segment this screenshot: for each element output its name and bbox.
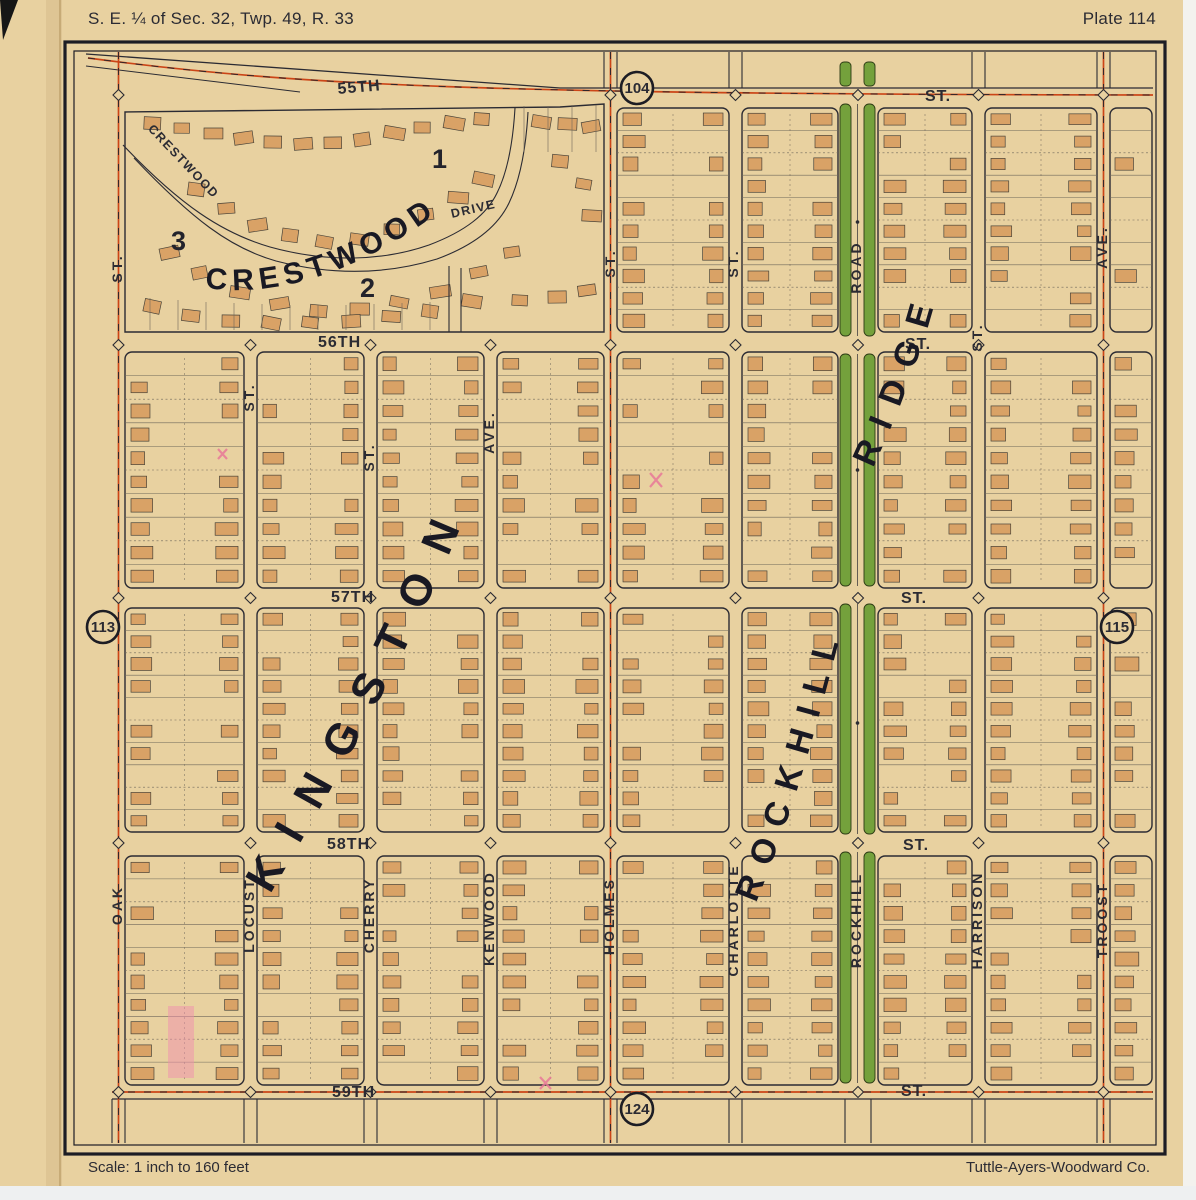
house: [503, 792, 518, 806]
house: [131, 681, 150, 693]
house: [503, 725, 522, 738]
house: [1078, 406, 1091, 416]
house: [815, 271, 832, 281]
house: [623, 546, 644, 559]
house: [131, 499, 153, 512]
house: [884, 500, 897, 511]
house: [812, 953, 832, 966]
house: [222, 358, 238, 370]
house: [991, 381, 1011, 394]
house: [1115, 523, 1132, 535]
house: [337, 952, 358, 965]
house: [1072, 381, 1091, 394]
house: [949, 428, 966, 442]
house: [709, 405, 723, 418]
house: [700, 570, 723, 581]
house: [884, 225, 905, 237]
house: [503, 382, 521, 393]
house: [218, 1022, 238, 1034]
house: [884, 976, 907, 989]
street-suffix-charlotte: ST.: [725, 248, 741, 277]
house: [383, 747, 399, 761]
house: [623, 524, 645, 535]
house: [623, 136, 645, 148]
house: [263, 748, 276, 759]
house: [953, 381, 966, 394]
house: [991, 158, 1005, 169]
house: [341, 908, 358, 919]
house: [458, 1022, 478, 1034]
house: [812, 1023, 832, 1033]
house: [263, 770, 285, 782]
house: [813, 381, 832, 394]
plat-page: S. E. ¼ of Sec. 32, Twp. 49, R. 33 Plate…: [0, 0, 1196, 1200]
house: [1077, 748, 1091, 760]
house: [221, 1045, 238, 1057]
house: [1069, 475, 1091, 489]
house: [884, 1045, 898, 1057]
house: [991, 1067, 1012, 1080]
plat-map-svg: S. E. ¼ of Sec. 32, Twp. 49, R. 33 Plate…: [0, 0, 1196, 1200]
house: [991, 815, 1007, 827]
house: [336, 547, 358, 559]
house: [263, 547, 285, 559]
house: [1115, 952, 1139, 966]
house: [884, 180, 906, 192]
house: [1070, 524, 1091, 534]
house: [383, 931, 396, 942]
house: [503, 885, 525, 896]
house: [623, 792, 639, 805]
house: [457, 357, 478, 371]
house: [748, 293, 764, 304]
house: [341, 452, 358, 464]
house: [584, 771, 598, 782]
house: [815, 135, 832, 147]
svg-text:113: 113: [91, 619, 115, 636]
house: [577, 382, 598, 393]
house: [991, 884, 1007, 897]
house: [623, 1022, 646, 1034]
house: [221, 725, 238, 737]
svg-text:104: 104: [624, 80, 650, 97]
house: [947, 1022, 966, 1033]
house: [383, 477, 397, 487]
house: [748, 953, 767, 966]
house: [945, 203, 966, 214]
street-label-kenwood: KENWOOD: [481, 870, 497, 966]
house: [811, 293, 832, 304]
house: [1115, 885, 1134, 897]
house: [949, 748, 966, 759]
house: [1072, 1045, 1091, 1057]
house: [503, 452, 521, 464]
house: [131, 636, 151, 648]
house: [1075, 546, 1091, 558]
street-label-troost: TROOST: [1094, 882, 1110, 958]
house: [884, 998, 906, 1011]
house: [341, 613, 358, 625]
house: [456, 429, 478, 440]
house: [884, 113, 905, 125]
house: [1071, 500, 1091, 510]
house: [748, 1068, 761, 1079]
house: [991, 953, 1008, 965]
house: [884, 547, 901, 557]
house: [263, 931, 280, 942]
house: [748, 658, 767, 669]
house: [623, 614, 643, 624]
street-label-59th: 59TH: [332, 1084, 375, 1101]
house: [707, 1022, 723, 1034]
house: [220, 658, 238, 671]
house: [383, 522, 403, 536]
house: [222, 404, 238, 418]
house: [344, 358, 358, 370]
house: [580, 930, 598, 942]
house: [816, 861, 832, 874]
house: [748, 135, 768, 147]
house: [464, 884, 478, 896]
house: [704, 771, 723, 782]
house: [943, 180, 966, 192]
house: [884, 270, 906, 283]
house: [337, 793, 358, 803]
house: [345, 499, 358, 511]
house: [1115, 1067, 1133, 1080]
house: [819, 1045, 832, 1056]
house: [947, 357, 966, 371]
house: [812, 500, 832, 510]
house: [813, 453, 832, 464]
house: [884, 476, 902, 488]
house: [815, 475, 832, 488]
house: [503, 999, 520, 1011]
house: [623, 680, 641, 693]
street-label-holmes: HOLMES: [601, 877, 617, 955]
house: [748, 202, 762, 215]
plate-number: Plate 114: [1083, 9, 1156, 28]
house: [345, 381, 358, 393]
house: [709, 202, 723, 215]
house: [217, 771, 238, 782]
house: [577, 976, 598, 988]
house: [813, 770, 832, 783]
house: [1075, 658, 1091, 671]
house: [383, 546, 404, 559]
house: [748, 271, 769, 281]
house: [701, 999, 723, 1011]
house: [1077, 226, 1091, 237]
house: [585, 703, 598, 714]
house: [1115, 907, 1132, 920]
house: [383, 725, 397, 738]
street-suffix-kenwood: AVE.: [481, 410, 497, 454]
house: [383, 499, 398, 511]
house: [548, 291, 566, 303]
house: [1115, 999, 1131, 1011]
house: [748, 522, 761, 536]
house: [551, 154, 568, 168]
house: [578, 570, 598, 582]
house: [991, 748, 1005, 760]
house: [710, 452, 723, 464]
house: [1115, 270, 1136, 283]
house: [951, 930, 966, 943]
house: [503, 1067, 518, 1080]
house: [944, 225, 966, 237]
house: [225, 999, 238, 1010]
house: [623, 703, 644, 714]
house: [950, 476, 966, 488]
house: [748, 113, 765, 125]
house: [623, 1045, 643, 1057]
house: [815, 225, 832, 237]
house: [1074, 158, 1091, 169]
house: [383, 884, 405, 896]
house: [131, 523, 149, 536]
street-suffix-locust: ST.: [241, 382, 257, 411]
house: [748, 158, 762, 170]
street-suffix-59th: ST.: [901, 1083, 927, 1100]
house: [503, 524, 518, 535]
house: [1115, 429, 1137, 440]
house: [1115, 452, 1134, 465]
house: [991, 770, 1011, 782]
house: [707, 954, 723, 965]
house: [223, 816, 238, 826]
house: [884, 702, 903, 716]
house: [884, 930, 905, 943]
house: [577, 725, 598, 738]
house: [1077, 680, 1091, 692]
house: [813, 247, 832, 260]
house: [884, 884, 901, 897]
house: [991, 271, 1007, 282]
house: [345, 931, 358, 942]
house: [216, 1068, 238, 1080]
house: [748, 315, 762, 326]
house: [813, 202, 832, 215]
house: [884, 635, 901, 649]
house: [579, 359, 598, 370]
house: [131, 658, 152, 671]
house: [220, 975, 238, 989]
house: [503, 703, 523, 714]
house: [220, 382, 238, 393]
house: [1069, 114, 1091, 125]
house: [950, 248, 966, 260]
house: [264, 136, 282, 148]
house: [748, 999, 770, 1011]
house: [558, 118, 578, 131]
house: [131, 428, 149, 441]
house: [951, 771, 966, 782]
block-number-2: 2: [360, 273, 375, 303]
house: [383, 792, 401, 804]
house: [580, 861, 598, 874]
house: [748, 908, 770, 919]
house: [945, 613, 966, 625]
house: [812, 999, 832, 1011]
house: [247, 218, 268, 233]
street-suffix-rockhill-road: ROAD: [848, 240, 864, 293]
house: [946, 954, 966, 964]
house: [342, 314, 361, 328]
house: [1115, 158, 1133, 170]
house: [131, 862, 149, 872]
house: [707, 293, 723, 304]
house: [263, 524, 279, 535]
house: [462, 725, 478, 738]
street-label-rockhill: ROCKHILL: [848, 872, 864, 968]
house: [623, 771, 638, 782]
house: [263, 703, 285, 714]
house: [812, 547, 832, 558]
house: [263, 658, 280, 670]
house: [1074, 569, 1091, 583]
house: [814, 158, 832, 170]
house: [991, 725, 1011, 737]
house: [991, 658, 1012, 671]
house: [950, 726, 966, 736]
house: [710, 269, 723, 282]
house: [503, 570, 526, 582]
house: [950, 158, 966, 170]
house: [1070, 293, 1091, 304]
house: [884, 954, 904, 964]
house: [1071, 453, 1091, 464]
house: [131, 792, 151, 804]
street-label-locust: LOCUST: [241, 877, 257, 953]
house: [503, 359, 519, 370]
house: [503, 246, 520, 259]
house: [263, 975, 279, 989]
house: [951, 270, 966, 283]
house: [1071, 770, 1091, 782]
house: [131, 953, 144, 965]
house: [579, 1021, 598, 1034]
house: [815, 884, 832, 896]
house: [1072, 884, 1091, 897]
house: [584, 747, 598, 760]
house: [503, 475, 517, 488]
house: [1071, 930, 1091, 943]
house: [461, 771, 478, 781]
house: [700, 976, 723, 987]
house: [131, 975, 144, 989]
house: [382, 310, 401, 322]
house: [131, 725, 152, 737]
house: [1115, 814, 1135, 827]
house: [748, 428, 764, 442]
house: [583, 658, 598, 670]
house: [263, 1022, 278, 1034]
house: [623, 225, 638, 237]
house: [131, 1068, 154, 1080]
house: [225, 681, 238, 693]
house: [462, 976, 478, 988]
house: [991, 975, 1005, 988]
house: [174, 123, 189, 133]
street-suffix-troost: AVE.: [1094, 225, 1110, 269]
house: [991, 226, 1012, 237]
house: [1115, 702, 1131, 716]
house: [991, 569, 1011, 583]
house: [131, 476, 147, 487]
house: [884, 613, 897, 625]
house: [884, 524, 904, 534]
house: [1070, 703, 1091, 716]
house: [457, 1067, 478, 1081]
house: [503, 861, 526, 874]
house: [951, 702, 966, 716]
house: [448, 191, 469, 204]
house: [503, 680, 525, 694]
house: [204, 128, 223, 139]
house: [991, 475, 1009, 489]
house: [748, 635, 766, 648]
house: [578, 406, 598, 416]
house: [462, 477, 478, 487]
house: [340, 999, 358, 1011]
house: [884, 570, 900, 582]
house: [216, 570, 238, 582]
house: [701, 930, 723, 942]
house: [585, 907, 598, 920]
house: [951, 113, 966, 125]
house: [704, 861, 723, 873]
house: [623, 930, 638, 942]
street-suffix-55th: ST.: [925, 88, 951, 105]
street-suffix-cherry: ST.: [361, 442, 377, 471]
house: [991, 793, 1007, 804]
house: [991, 358, 1006, 369]
house: [704, 724, 723, 738]
street-label-58th: 58TH: [327, 836, 370, 853]
house: [1073, 428, 1091, 441]
house: [263, 570, 277, 582]
house: [131, 748, 150, 760]
house: [263, 1068, 279, 1079]
house: [952, 884, 966, 897]
house: [748, 475, 770, 488]
house: [991, 524, 1011, 534]
house: [748, 931, 764, 941]
house: [748, 500, 766, 510]
house: [263, 613, 283, 625]
block-number-1: 1: [432, 144, 447, 174]
house: [623, 314, 645, 327]
house: [383, 771, 403, 781]
house: [748, 571, 767, 582]
plate-ref-south: 124: [621, 1093, 653, 1125]
house: [623, 747, 641, 760]
house: [131, 816, 147, 826]
house: [945, 500, 966, 511]
house: [383, 998, 399, 1011]
house: [383, 862, 401, 873]
house: [339, 815, 358, 828]
house: [1078, 975, 1091, 988]
house: [583, 452, 598, 464]
house: [884, 203, 902, 214]
house: [383, 953, 398, 966]
house: [884, 1022, 900, 1033]
street-suffix-57th: ST.: [901, 590, 927, 607]
house: [1115, 405, 1136, 417]
house: [884, 906, 903, 920]
